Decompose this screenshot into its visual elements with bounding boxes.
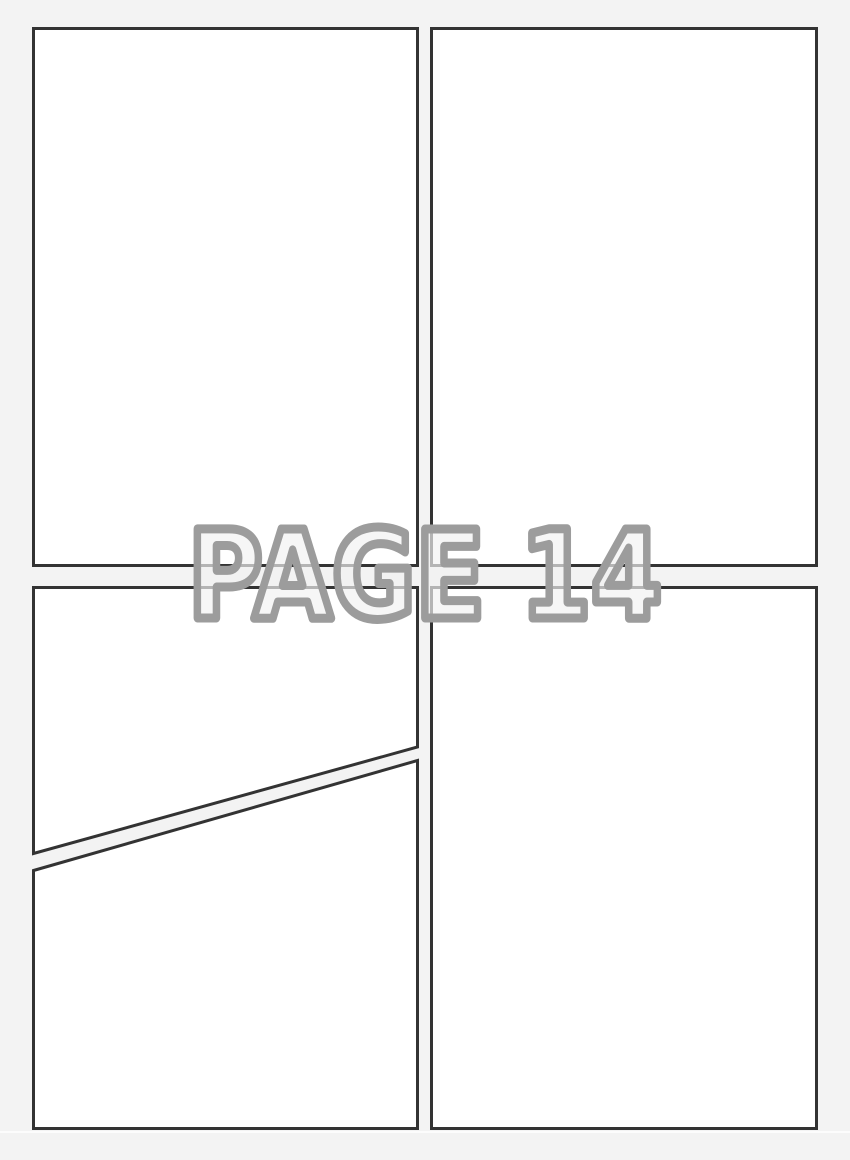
panel-bottom-right: [432, 588, 817, 1129]
bottom-highlight-line: [0, 1131, 850, 1133]
comic-page-canvas: PAGE 14 PAGE 14: [0, 0, 850, 1160]
panel-top-left: [34, 29, 418, 566]
panel-top-right: [432, 29, 817, 566]
comic-page-template: PAGE 14 PAGE 14: [0, 0, 850, 1160]
page-number-watermark: PAGE 14: [188, 505, 662, 647]
